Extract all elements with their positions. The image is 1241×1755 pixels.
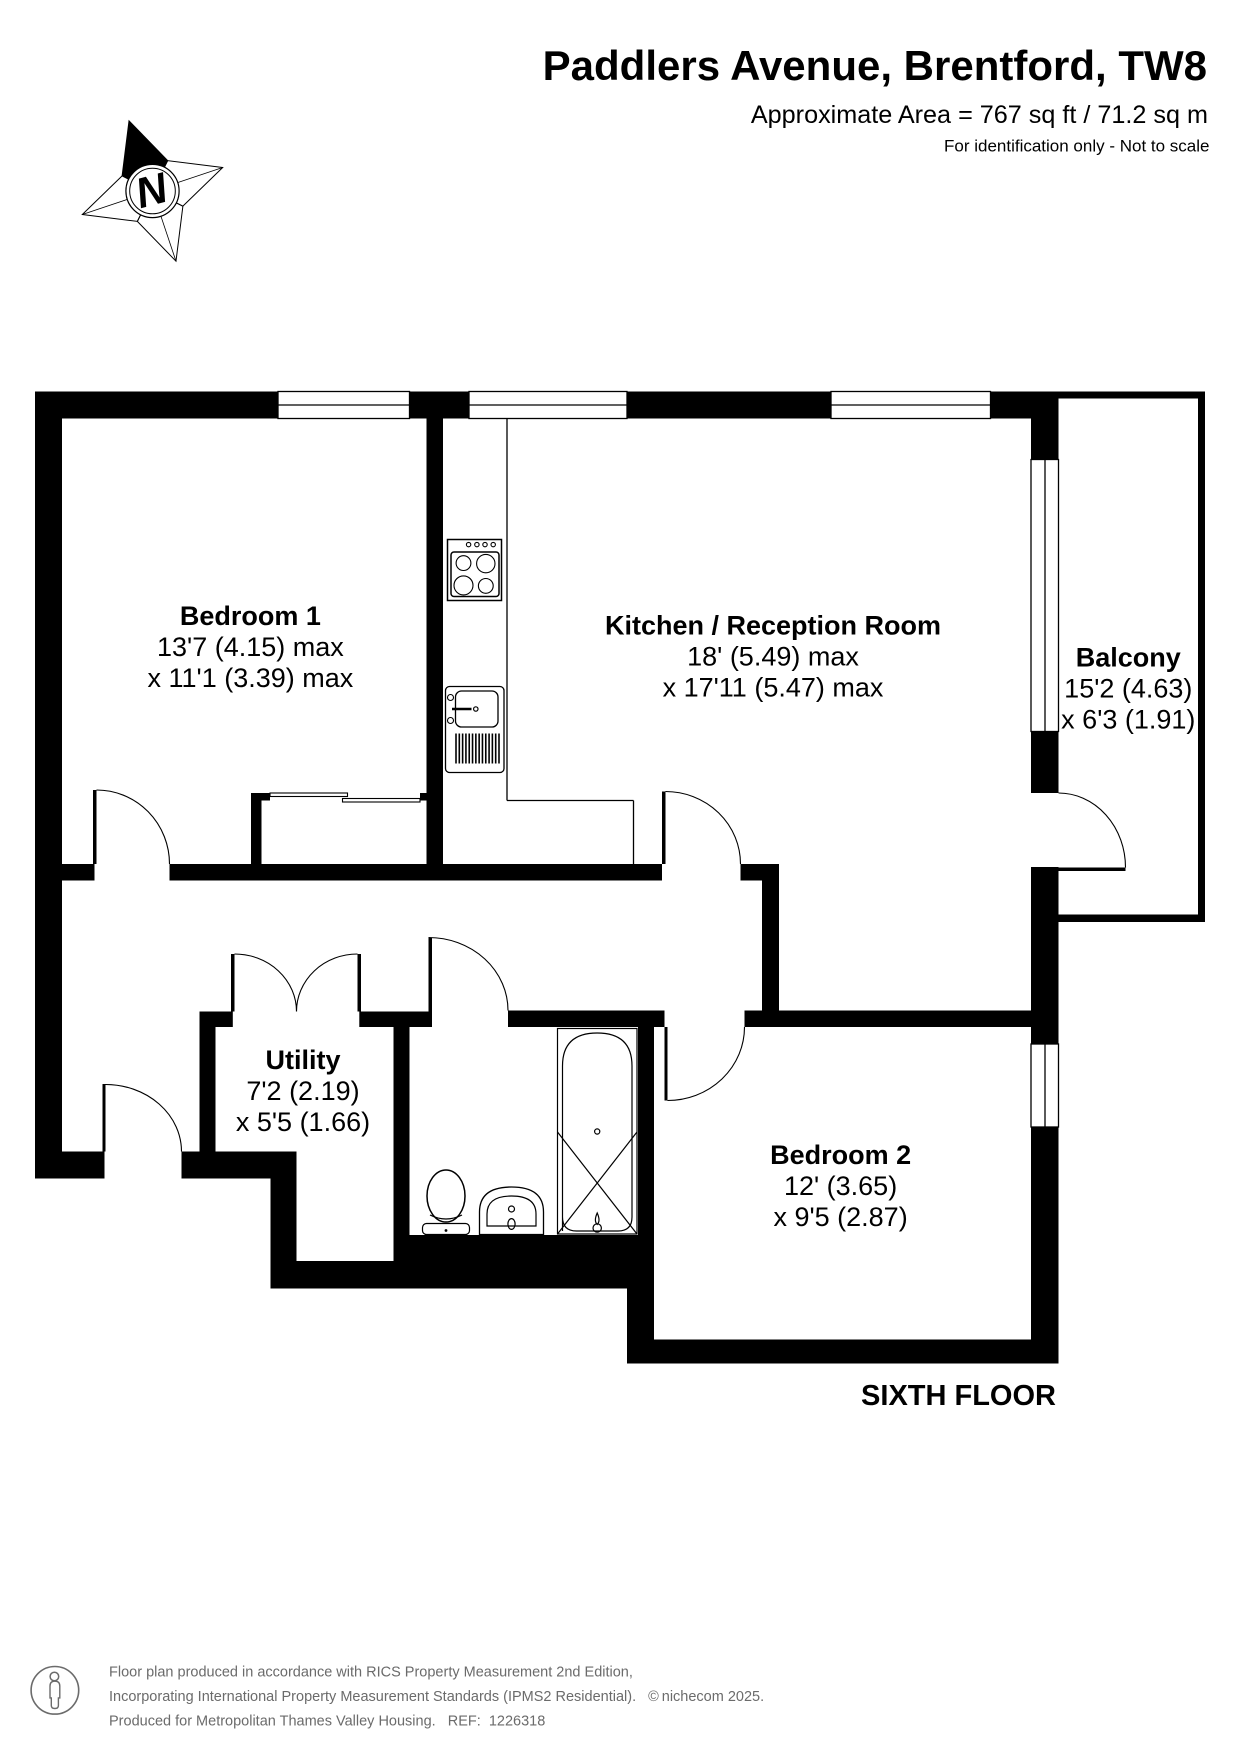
svg-text:SIXTH FLOOR: SIXTH FLOOR [861,1380,1056,1412]
svg-text:Balcony: Balcony [1076,643,1181,673]
svg-text:Bedroom 1: Bedroom 1 [180,601,321,631]
svg-text:Approximate Area = 767 sq ft /: Approximate Area = 767 sq ft / 71.2 sq m [751,101,1208,129]
svg-text:Paddlers Avenue, Brentford, TW: Paddlers Avenue, Brentford, TW8 [543,42,1207,89]
svg-text:For identification only - Not: For identification only - Not to scale [944,137,1210,156]
svg-text:x 17'11 (5.47) max: x 17'11 (5.47) max [663,673,884,703]
svg-text:Kitchen / Reception Room: Kitchen / Reception Room [605,611,941,641]
svg-text:15'2 (4.63): 15'2 (4.63) [1064,674,1192,704]
svg-text:x 6'3 (1.91): x 6'3 (1.91) [1061,705,1195,735]
svg-text:x 11'1 (3.39) max: x 11'1 (3.39) max [148,663,354,693]
svg-text:x 9'5 (2.87): x 9'5 (2.87) [773,1202,907,1232]
svg-text:Utility: Utility [265,1045,340,1075]
svg-text:Incorporating International Pr: Incorporating International Property Mea… [109,1689,764,1705]
svg-text:Produced for Metropolitan Tham: Produced for Metropolitan Thames Valley … [109,1714,545,1730]
svg-text:13'7 (4.15) max: 13'7 (4.15) max [157,632,344,662]
svg-text:7'2 (2.19): 7'2 (2.19) [246,1076,359,1106]
svg-text:x 5'5 (1.66): x 5'5 (1.66) [236,1107,370,1137]
svg-text:Bedroom 2: Bedroom 2 [770,1140,911,1170]
svg-text:12' (3.65): 12' (3.65) [784,1171,897,1201]
svg-text:Floor plan produced in accorda: Floor plan produced in accordance with R… [109,1665,633,1681]
svg-text:18' (5.49) max: 18' (5.49) max [687,642,859,672]
